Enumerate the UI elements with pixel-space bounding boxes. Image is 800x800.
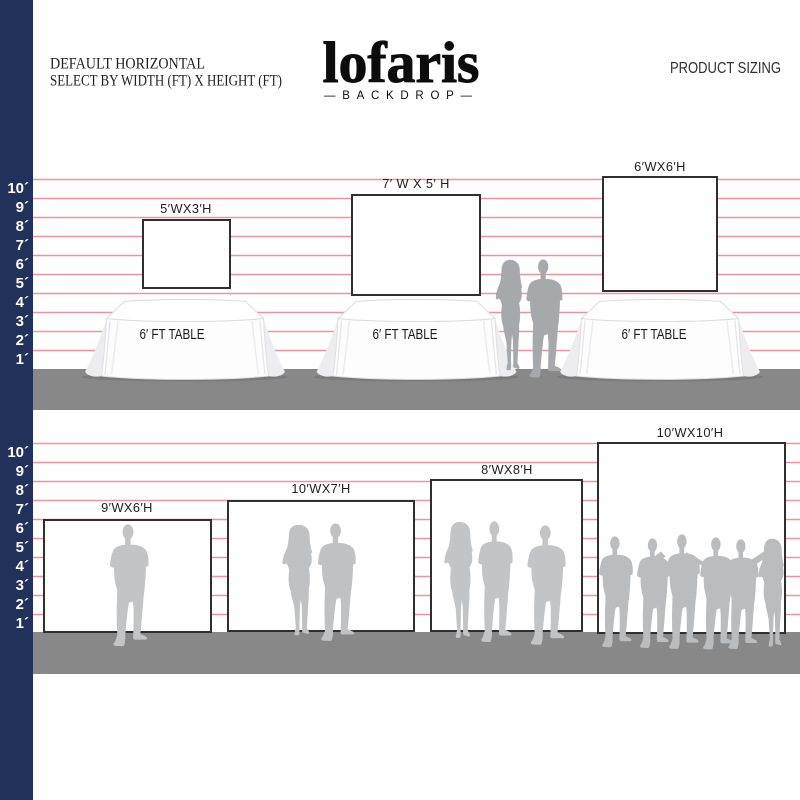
svg-text:DEFAULT HORIZONTAL: DEFAULT HORIZONTAL	[50, 56, 205, 73]
svg-text:4´: 4´	[16, 294, 29, 311]
svg-text:10′WX7′H: 10′WX7′H	[291, 481, 350, 496]
svg-text:10′WX10′H: 10′WX10′H	[657, 425, 724, 440]
svg-text:10´: 10´	[7, 444, 29, 461]
svg-text:1´: 1´	[16, 351, 29, 368]
svg-text:1´: 1´	[16, 615, 29, 632]
svg-text:6′WX6′H: 6′WX6′H	[634, 159, 686, 174]
svg-text:9´: 9´	[16, 463, 29, 480]
svg-text:6´: 6´	[16, 520, 29, 537]
svg-text:9´: 9´	[16, 199, 29, 216]
svg-text:7′ W X 5′ H: 7′ W X 5′ H	[382, 176, 450, 191]
svg-text:—BACKDROP—: —BACKDROP—	[324, 90, 478, 102]
svg-text:PRODUCT SIZING: PRODUCT SIZING	[670, 60, 781, 77]
svg-text:7´: 7´	[16, 501, 29, 518]
svg-text:3´: 3´	[16, 313, 29, 330]
svg-text:4´: 4´	[16, 558, 29, 575]
svg-text:6′ FT TABLE: 6′ FT TABLE	[622, 327, 687, 343]
svg-text:6′ FT TABLE: 6′ FT TABLE	[373, 327, 438, 343]
svg-text:7´: 7´	[16, 237, 29, 254]
svg-text:2´: 2´	[16, 596, 29, 613]
svg-text:10´: 10´	[7, 180, 29, 197]
svg-text:8´: 8´	[16, 482, 29, 499]
svg-text:6′ FT TABLE: 6′ FT TABLE	[140, 327, 205, 343]
svg-text:3´: 3´	[16, 577, 29, 594]
svg-text:9′WX6′H: 9′WX6′H	[101, 500, 153, 515]
svg-text:2´: 2´	[16, 332, 29, 349]
svg-text:8′WX8′H: 8′WX8′H	[481, 462, 533, 477]
svg-text:lofaris: lofaris	[323, 30, 480, 95]
svg-text:5′WX3′H: 5′WX3′H	[160, 201, 212, 216]
svg-text:6´: 6´	[16, 256, 29, 273]
svg-text:8´: 8´	[16, 218, 29, 235]
svg-text:5´: 5´	[16, 275, 29, 292]
svg-text:SELECT BY WIDTH (FT) X HEIGHT: SELECT BY WIDTH (FT) X HEIGHT (FT)	[50, 73, 282, 90]
svg-text:5´: 5´	[16, 539, 29, 556]
